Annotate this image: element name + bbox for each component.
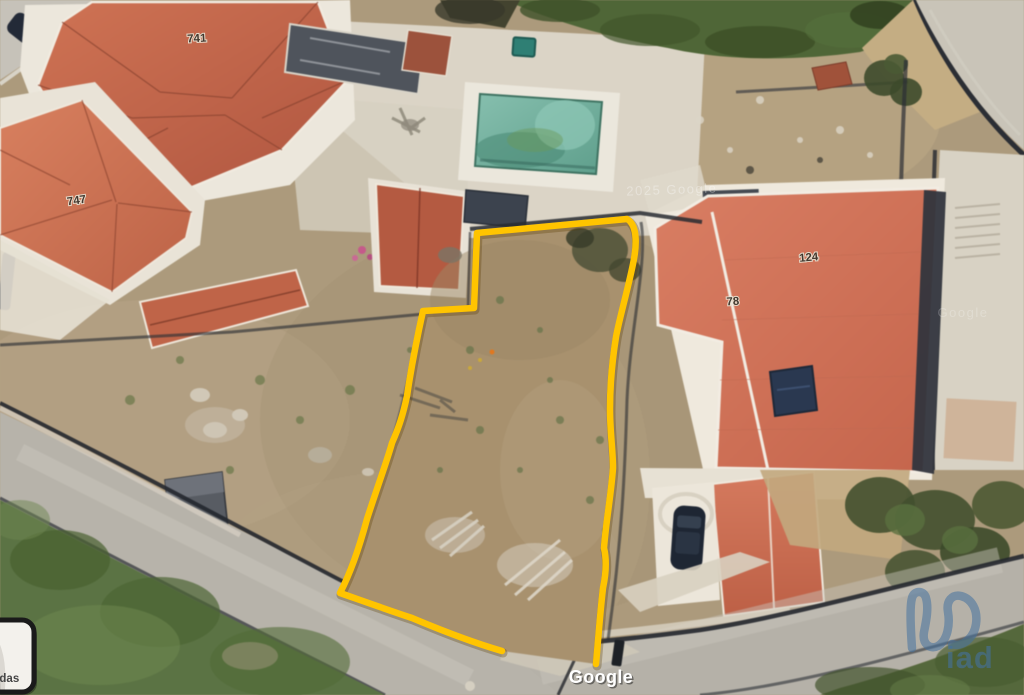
house-number-78: 78 (726, 296, 740, 309)
inset-map-label: madas (0, 673, 19, 685)
pool-equipment (512, 37, 535, 56)
house-number-124: 124 (799, 251, 820, 265)
iad-logo-text: iad (946, 640, 994, 675)
house-number-741: 741 (187, 32, 207, 45)
google-logo: Google (569, 667, 633, 687)
google-attribution: Google Google (569, 667, 635, 689)
inset-map-toggle[interactable]: madas (0, 620, 37, 695)
dark-outbuilding (464, 190, 528, 228)
skylight (770, 366, 817, 416)
parked-car-driveway (670, 505, 706, 571)
imagery-watermark-2: Google (938, 305, 989, 320)
satellite-image[interactable]: 741 747 124 78 2025 Google Google iad Go… (0, 0, 1024, 695)
imagery-watermark: 2025 Google (626, 180, 717, 198)
